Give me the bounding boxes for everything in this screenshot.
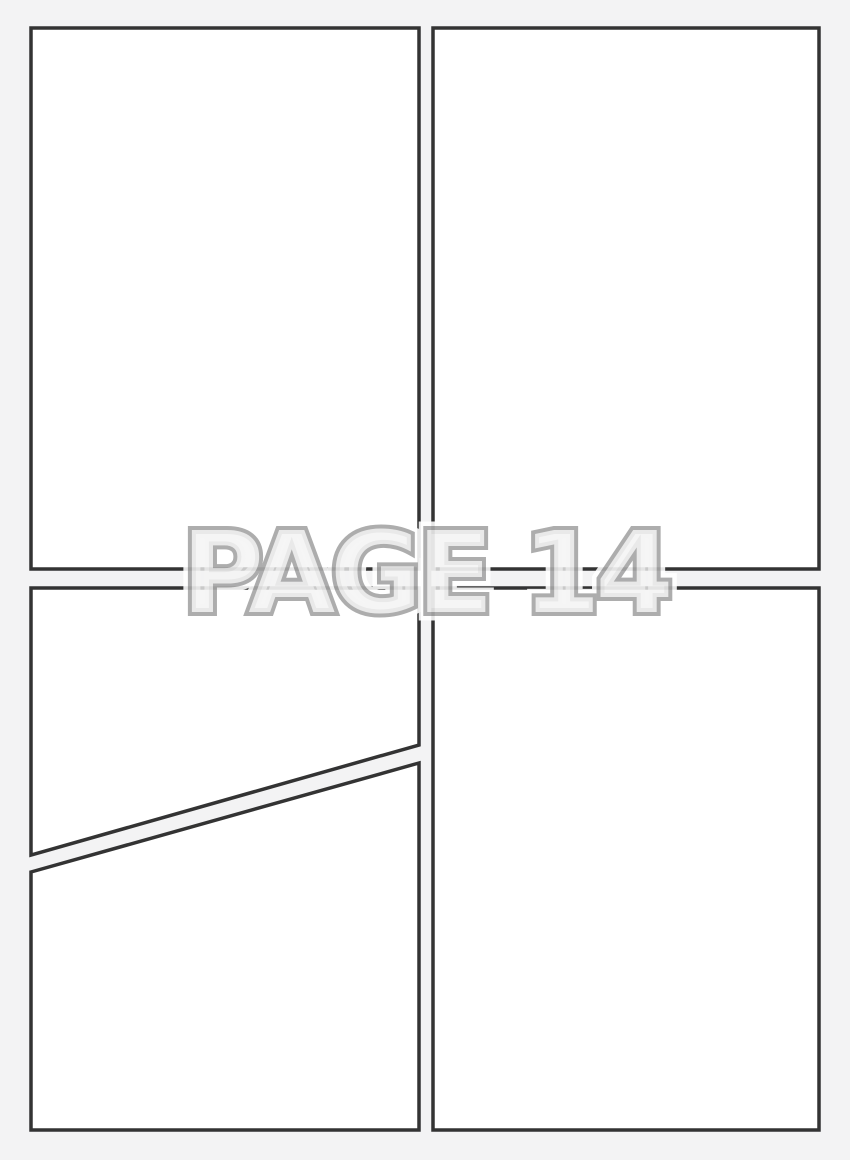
- comic-panel-top-right: [433, 28, 819, 569]
- comic-panel-top-left: [31, 28, 419, 569]
- comic-page-template: PAGE 14 PAGE 14: [0, 0, 850, 1160]
- comic-panel-bottom-right: [433, 588, 819, 1130]
- comic-panel-grid: [0, 0, 850, 1160]
